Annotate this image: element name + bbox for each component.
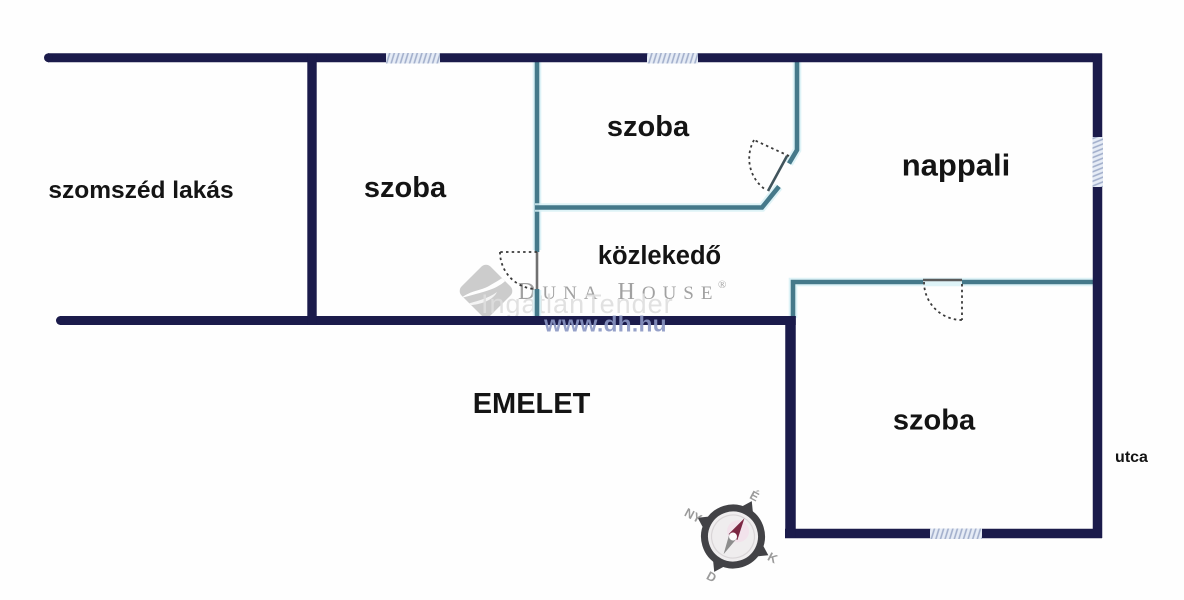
- svg-text:K: K: [765, 550, 780, 567]
- svg-text:www.dh.hu: www.dh.hu: [543, 312, 667, 337]
- svg-text:D: D: [704, 569, 719, 586]
- svg-text:szoba: szoba: [364, 172, 447, 204]
- svg-text:nappali: nappali: [902, 148, 1011, 183]
- svg-text:szoba: szoba: [893, 405, 976, 437]
- svg-text:közlekedő: közlekedő: [598, 242, 721, 270]
- svg-text:szoba: szoba: [607, 111, 690, 143]
- svg-text:®: ®: [718, 279, 726, 291]
- svg-text:szomszéd lakás: szomszéd lakás: [48, 177, 233, 204]
- svg-text:É: É: [747, 487, 761, 504]
- svg-text:utca: utca: [1115, 449, 1148, 466]
- svg-text:EMELET: EMELET: [473, 388, 591, 420]
